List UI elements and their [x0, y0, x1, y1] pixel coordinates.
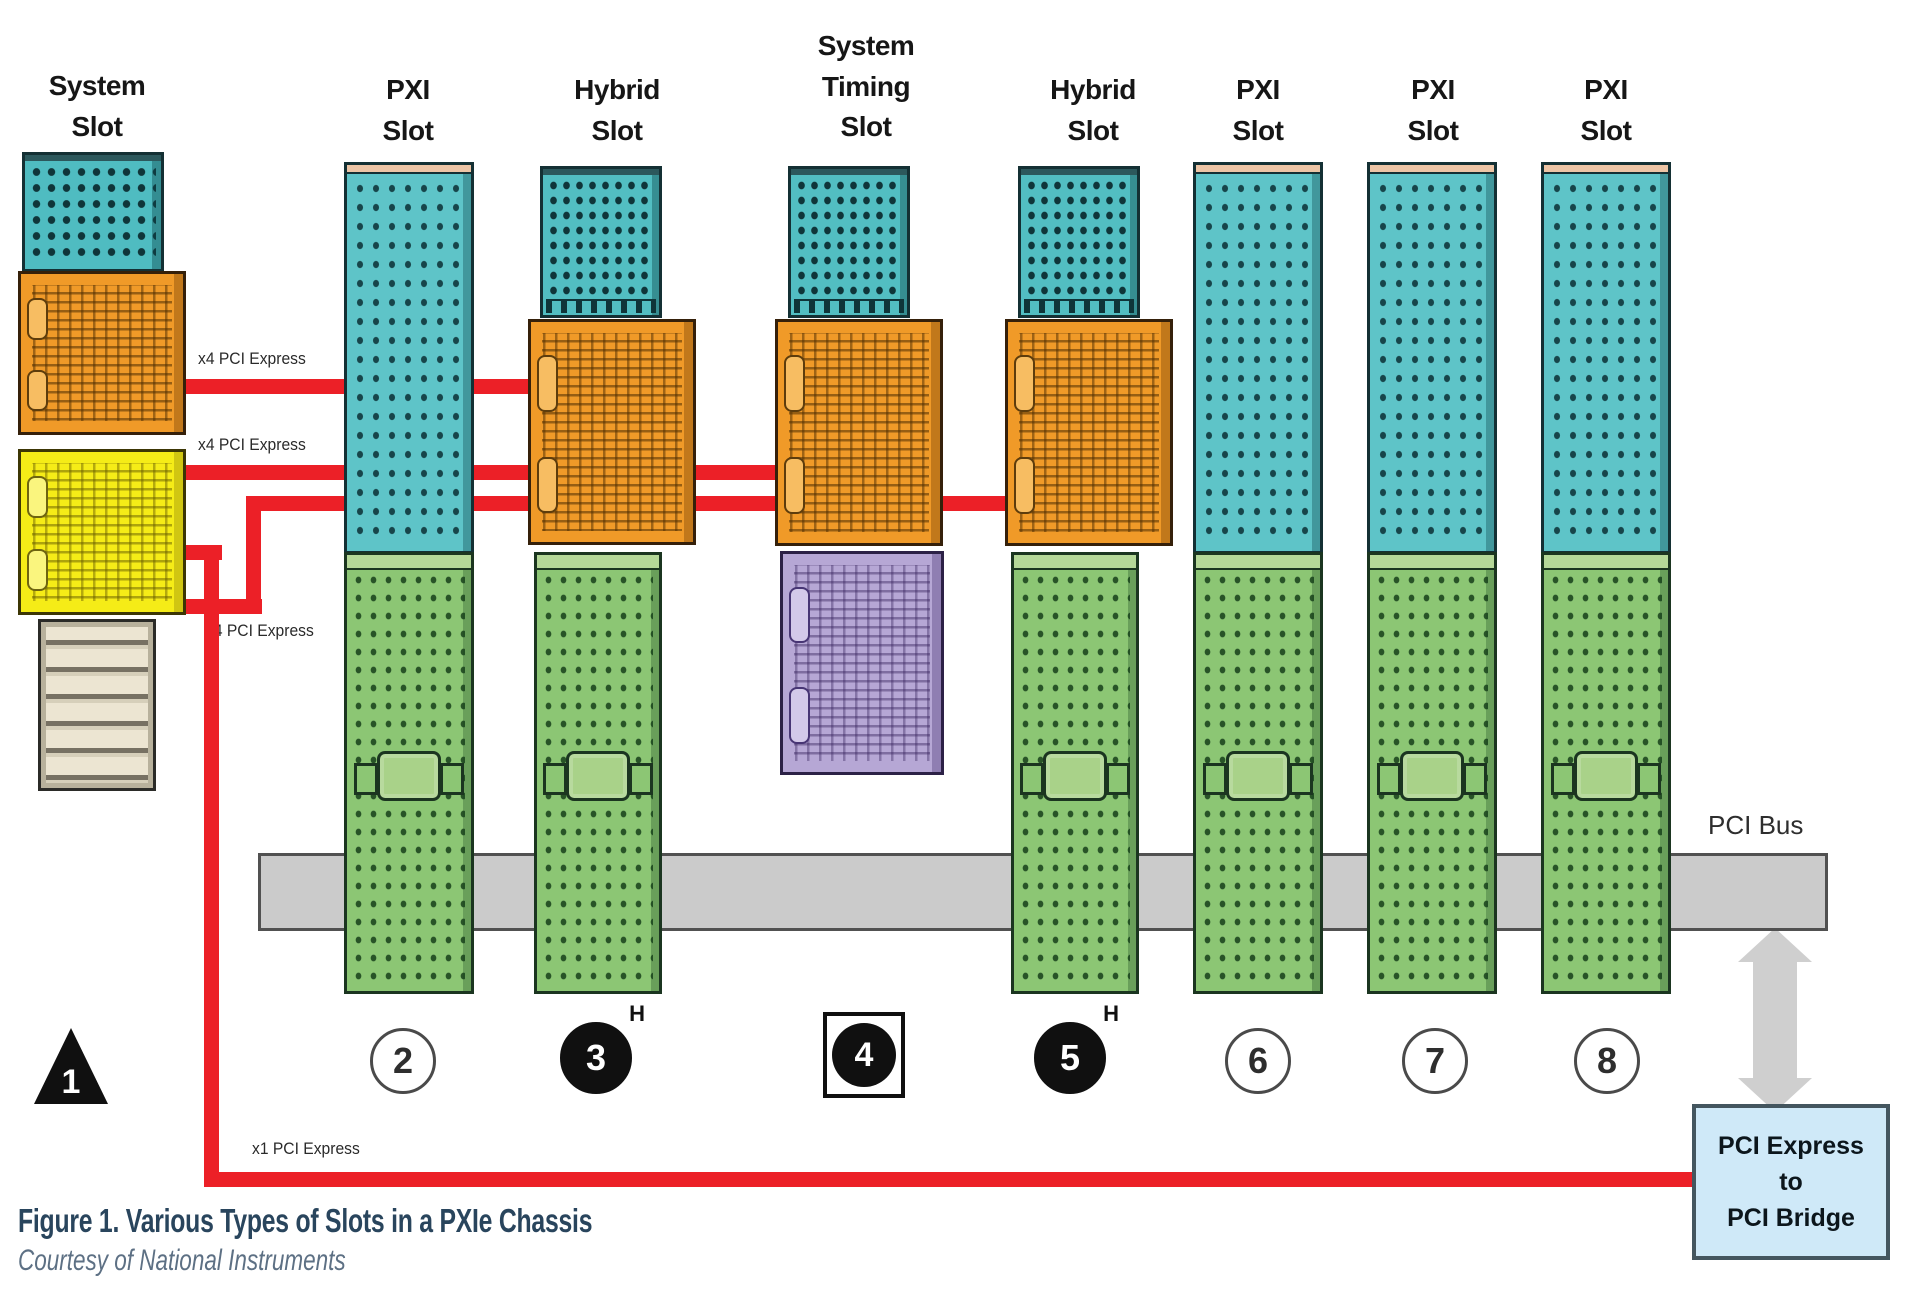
- slot-8-pci-j1-connector: [1541, 552, 1671, 994]
- pcie-link-x4-slot4-label: x4 PCI Express: [198, 435, 306, 455]
- slot-1-label: System Slot: [49, 66, 146, 147]
- slot-4-number: 4: [855, 1036, 874, 1075]
- slot-1-number-badge: 1: [34, 1028, 108, 1104]
- figure-caption-credit: Courtesy of National Instruments: [18, 1244, 346, 1278]
- slot-2-number: 2: [393, 1040, 413, 1082]
- slot-4-timing-connector: [780, 551, 944, 775]
- slot-4-label: System Timing Slot: [818, 26, 915, 148]
- pxie-chassis-slots-diagram: System Slot PXI Slot Hybrid Slot System …: [0, 0, 1920, 1298]
- slot-3-pxi-trigger-connector: [540, 166, 662, 318]
- slot-7-label: PXI Slot: [1408, 70, 1459, 151]
- slot-6-label: PXI Slot: [1233, 70, 1284, 151]
- slot-8-connector-key: [1574, 751, 1638, 801]
- slot-3-pxie-link-connector: [528, 319, 696, 545]
- slot-7-pci-j1-connector: [1367, 552, 1497, 994]
- slot-5-hybrid-marker: H: [1103, 1001, 1119, 1027]
- pcie-link-x4-slot5-label: x4 PCI Express: [206, 621, 314, 641]
- slot-4-pxi-trigger-connector: [788, 166, 910, 318]
- slot-2-number-badge: 2: [370, 1028, 436, 1094]
- slot-1-pxi-trigger-connector: [22, 152, 164, 272]
- slot-1-system-link-connector: [18, 449, 186, 615]
- slot-4-pxie-link-connector: [775, 319, 943, 546]
- bus-bridge-arrow-up-icon: [1738, 928, 1812, 962]
- slot-5-pxi-trigger-connector: [1018, 166, 1140, 318]
- slot-1-pxie-link-connector: [18, 271, 186, 435]
- slot-4-number-badge: 4: [823, 1012, 905, 1098]
- slot-5-number-badge: 5 H: [1034, 1022, 1106, 1094]
- pcie-link-x1-bridge-line: [204, 1172, 1694, 1187]
- slot-6-number: 6: [1248, 1040, 1268, 1082]
- slot-3-number: 3: [586, 1037, 606, 1079]
- slot-6-number-badge: 6: [1225, 1028, 1291, 1094]
- slot-8-number: 8: [1597, 1040, 1617, 1082]
- slot-7-connector-key: [1400, 751, 1464, 801]
- slot-7-number: 7: [1425, 1040, 1445, 1082]
- slot-1-power-connector: [38, 619, 156, 791]
- slot-8-pxi-j2-connector: [1541, 162, 1671, 554]
- slot-5-number: 5: [1060, 1037, 1080, 1079]
- slot-3-connector-key: [566, 751, 630, 801]
- pcie-to-pci-bridge-box: PCI Express to PCI Bridge: [1692, 1104, 1890, 1260]
- figure-caption-title: Figure 1. Various Types of Slots in a PX…: [18, 1202, 592, 1240]
- slot-3-number-badge: 3 H: [560, 1022, 632, 1094]
- slot-8-label: PXI Slot: [1581, 70, 1632, 151]
- pci-bus-label: PCI Bus: [1708, 810, 1803, 841]
- slot-6-pci-j1-connector: [1193, 552, 1323, 994]
- slot-2-label: PXI Slot: [383, 70, 434, 151]
- slot-6-pxi-j2-connector: [1193, 162, 1323, 554]
- slot-2-connector-key: [377, 751, 441, 801]
- slot-3-pci-j1-connector: [534, 552, 662, 994]
- slot-7-pxi-j2-connector: [1367, 162, 1497, 554]
- slot-5-label: Hybrid Slot: [1050, 70, 1136, 151]
- slot-5-connector-key: [1043, 751, 1107, 801]
- slot-4-number-circle: 4: [832, 1023, 896, 1087]
- slot-2-pci-j1-connector: [344, 552, 474, 994]
- slot-1-number: 1: [62, 1065, 81, 1099]
- slot-8-number-badge: 8: [1574, 1028, 1640, 1094]
- slot-6-connector-key: [1226, 751, 1290, 801]
- pcie-link-x4-slot5-riser: [246, 496, 261, 614]
- pcie-link-x4-slot3-label: x4 PCI Express: [198, 349, 306, 369]
- slot-3-hybrid-marker: H: [629, 1001, 645, 1027]
- bus-bridge-arrow-shaft: [1753, 958, 1797, 1082]
- slot-5-pxie-link-connector: [1005, 319, 1173, 546]
- slot-5-pci-j1-connector: [1011, 552, 1139, 994]
- slot-3-label: Hybrid Slot: [574, 70, 660, 151]
- pcie-link-x1-bridge-label: x1 PCI Express: [252, 1139, 360, 1159]
- pcie-link-x1-bridge-riser: [204, 545, 219, 1187]
- slot-2-pxi-j2-connector: [344, 162, 474, 554]
- slot-7-number-badge: 7: [1402, 1028, 1468, 1094]
